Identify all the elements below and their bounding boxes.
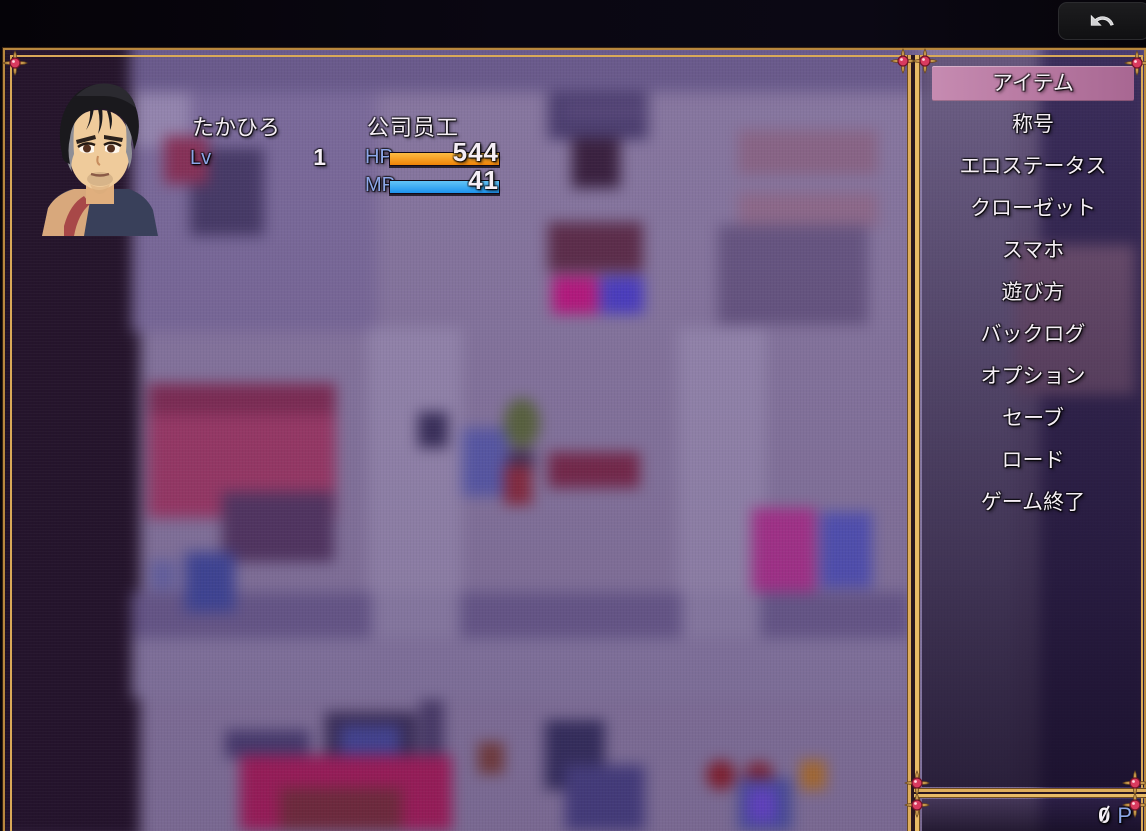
actor-portrait xyxy=(34,76,164,236)
mp-value: 41 xyxy=(389,165,499,196)
gem-ornament-icon xyxy=(904,792,930,818)
gem-ornament-icon xyxy=(1124,50,1146,76)
top-bar xyxy=(0,0,1146,48)
gem-ornament-icon xyxy=(1122,792,1146,818)
menu-divider-border xyxy=(906,55,922,831)
currency-top-border xyxy=(914,787,1146,799)
actor-status[interactable]: たかひろ 公司员工 Lv 1 HP 544 MP 41 xyxy=(20,70,520,250)
gem-ornament-icon xyxy=(912,48,938,74)
undo-arrow-icon xyxy=(1087,8,1117,34)
back-button[interactable] xyxy=(1058,2,1146,40)
game-screen: アイテム称号エロステータスクローゼットスマホ遊び方バックログオプションセーブロー… xyxy=(0,0,1146,831)
hp-value: 544 xyxy=(389,137,499,168)
actor-name: たかひろ xyxy=(192,110,280,142)
level-value: 1 xyxy=(250,144,327,171)
level-label: Lv xyxy=(190,147,211,170)
